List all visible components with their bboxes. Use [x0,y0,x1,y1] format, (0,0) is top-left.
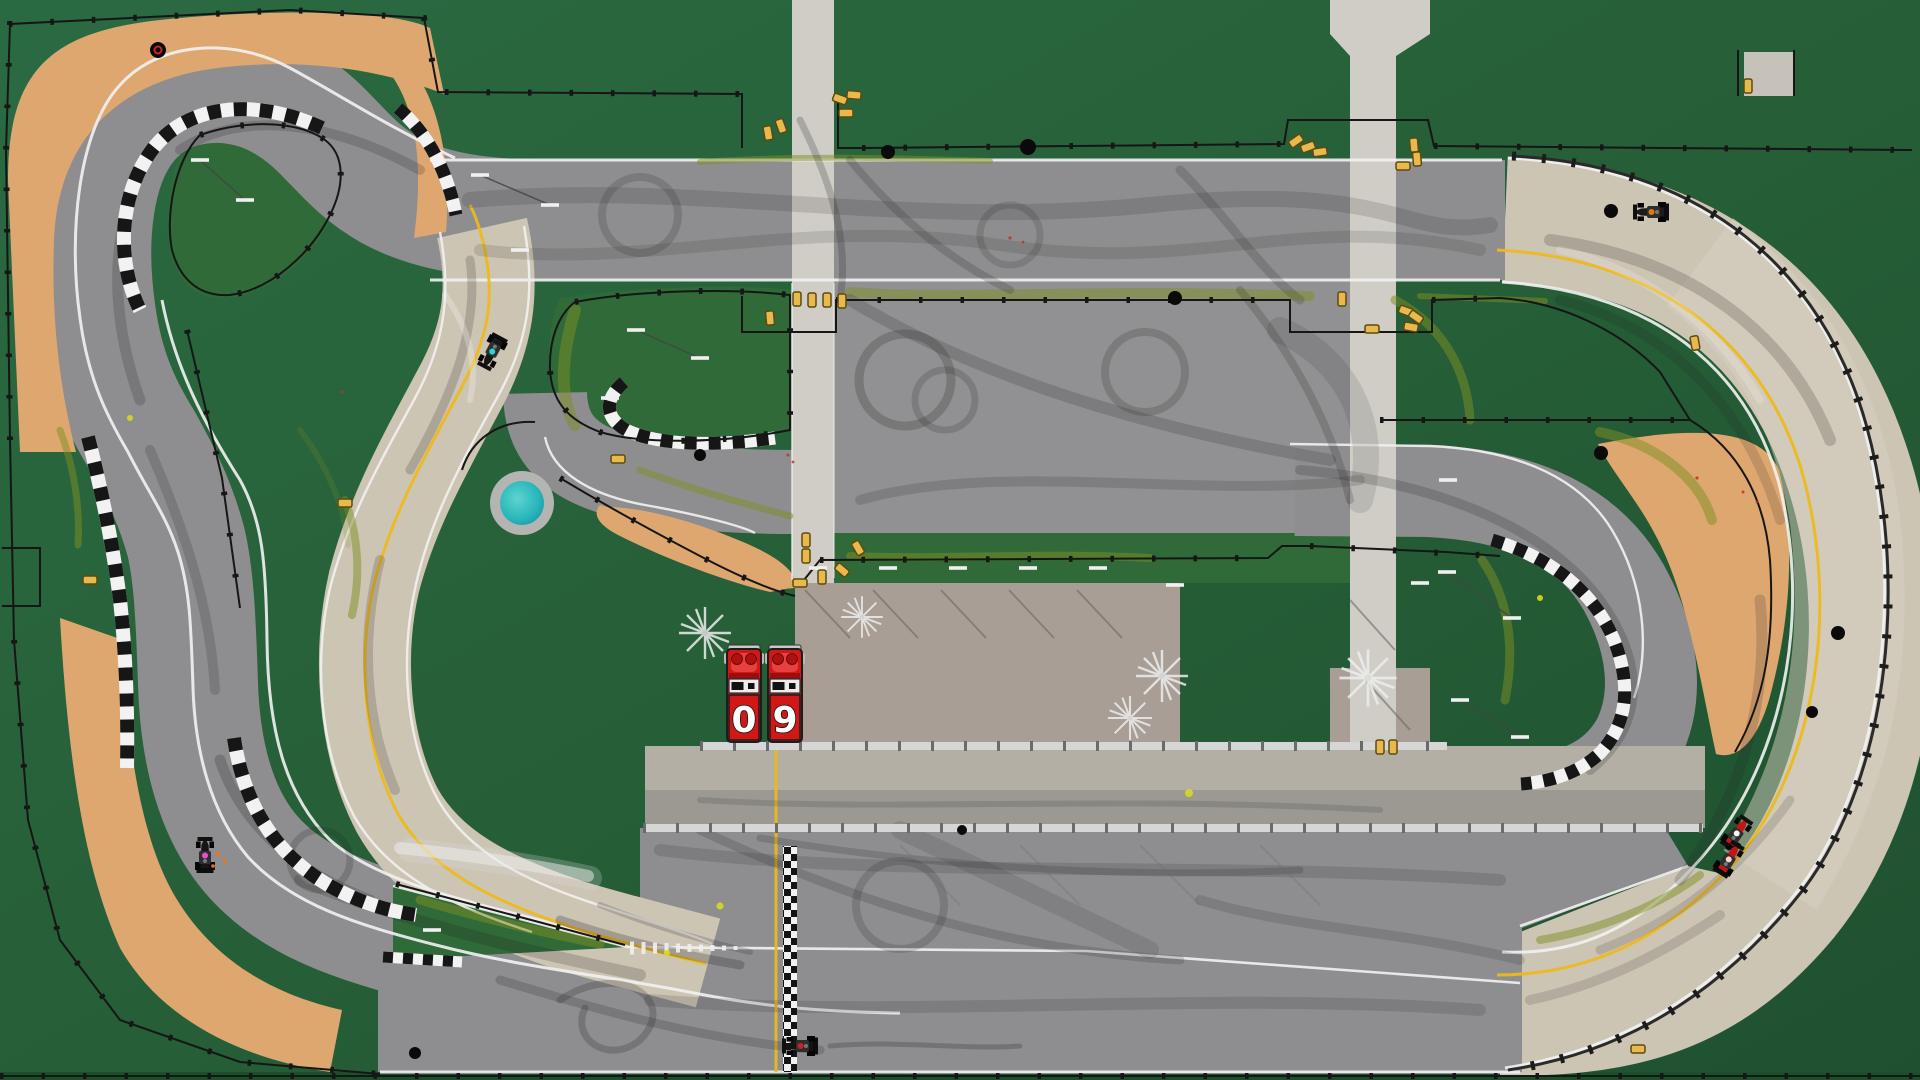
pond [490,471,554,535]
truck-digit-0: 0 [731,700,756,741]
game-viewport[interactable]: 0 9 [0,0,1920,1080]
number-truck-0: 0 [724,645,764,742]
number-truck-9: 9 [765,645,805,742]
race-track-map: 0 9 [0,0,1920,1080]
truck-digit-9: 9 [772,700,797,741]
